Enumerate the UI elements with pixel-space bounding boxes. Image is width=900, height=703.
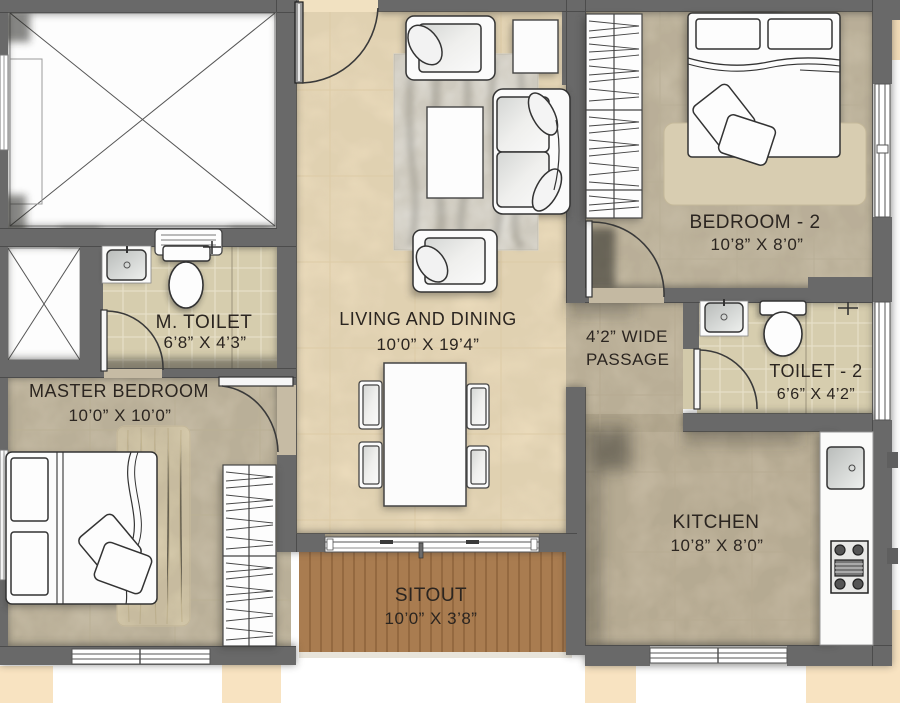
svg-text:MASTER BEDROOM: MASTER BEDROOM [29,381,209,401]
svg-text:6’6” X 4’2”: 6’6” X 4’2” [777,386,855,403]
svg-text:4’2” WIDE: 4’2” WIDE [586,327,668,346]
svg-text:10’8” X 8’0”: 10’8” X 8’0” [711,235,804,254]
svg-text:KITCHEN: KITCHEN [673,512,760,533]
svg-text:10’0” X 3’8”: 10’0” X 3’8” [385,609,478,628]
svg-text:BEDROOM - 2: BEDROOM - 2 [689,212,820,233]
svg-text:SITOUT: SITOUT [395,585,467,606]
svg-text:M. TOILET: M. TOILET [156,312,253,333]
svg-text:10’0” X 10’0”: 10’0” X 10’0” [69,406,172,425]
svg-text:10’0” X 19’4”: 10’0” X 19’4” [377,335,480,354]
svg-text:TOILET - 2: TOILET - 2 [769,361,862,381]
svg-text:PASSAGE: PASSAGE [586,350,670,369]
svg-text:6’8” X 4’3”: 6’8” X 4’3” [164,333,247,352]
svg-text:LIVING AND DINING: LIVING AND DINING [339,309,517,329]
svg-text:10’8” X 8’0”: 10’8” X 8’0” [671,536,764,555]
